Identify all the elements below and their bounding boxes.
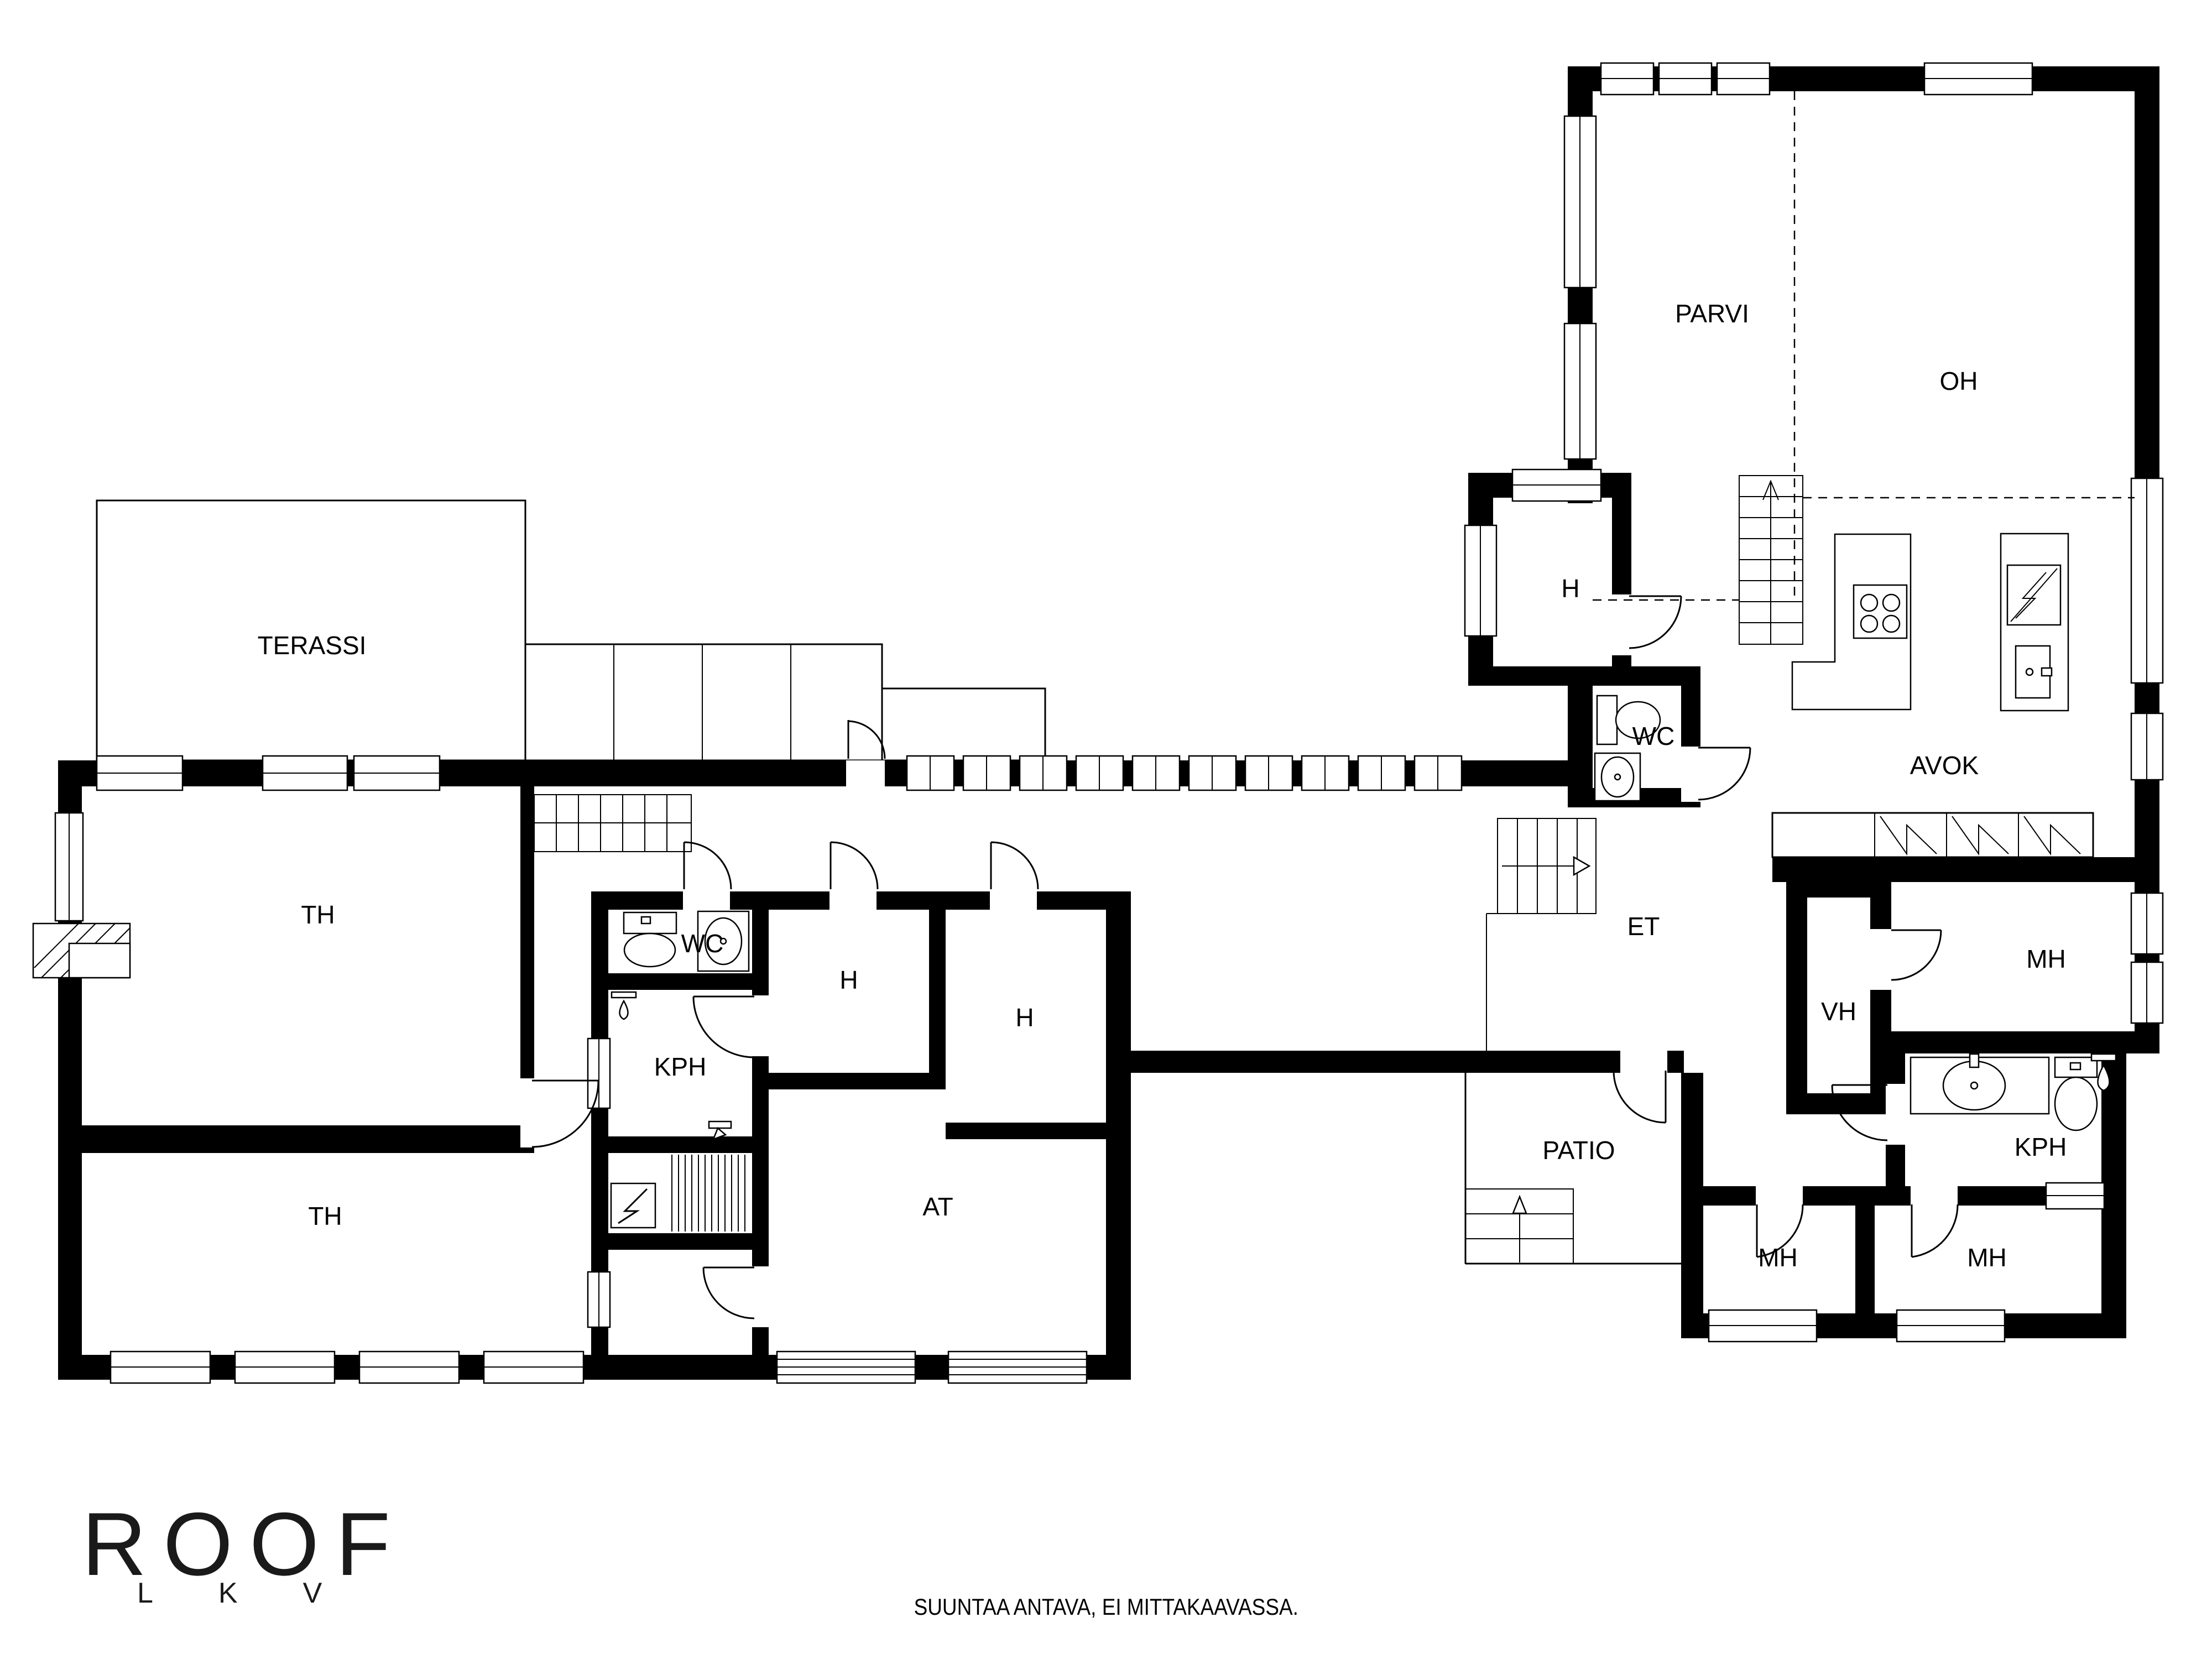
window-icon	[263, 756, 347, 790]
window-icon	[359, 1352, 459, 1383]
brand-logo-subtext: LKV	[137, 1577, 387, 1609]
sauna-benches-icon	[672, 1155, 745, 1232]
window-icon	[1717, 63, 1770, 95]
room-label-th-lower: TH	[308, 1202, 342, 1230]
sink-icon	[1595, 753, 1640, 801]
window-icon	[2131, 893, 2163, 954]
window-icon	[963, 756, 1010, 790]
door	[1612, 594, 1681, 655]
room-label-h-center-2: H	[1015, 1003, 1034, 1032]
window-icon	[235, 1352, 335, 1383]
window-icon	[97, 756, 182, 790]
window-icon	[484, 1352, 583, 1383]
link-steps	[534, 795, 691, 852]
wardrobe-icon	[1772, 813, 2093, 857]
door	[703, 1266, 769, 1327]
brand-logo: ROOF LKV	[82, 1494, 407, 1609]
window-icon	[1897, 1310, 2005, 1342]
fireplace-icon	[2007, 565, 2060, 625]
room-label-th-upper: TH	[301, 900, 335, 929]
door	[693, 995, 769, 1057]
entry-door	[846, 720, 885, 786]
door	[1870, 929, 1941, 990]
room-label-mh-bottom-1: MH	[1758, 1243, 1798, 1272]
window-icon	[1076, 756, 1123, 790]
window-icon	[1465, 525, 1496, 636]
window-icon	[1564, 324, 1596, 459]
room-label-vh: VH	[1821, 997, 1856, 1026]
shower-icon	[612, 992, 636, 1019]
room-label-kph-center: KPH	[654, 1052, 707, 1081]
room-label-at: AT	[922, 1192, 953, 1221]
window-icon	[1415, 756, 1462, 790]
door	[1614, 1051, 1667, 1123]
door	[990, 842, 1038, 910]
room-label-mh-right: MH	[2026, 945, 2066, 973]
window-icon	[1302, 756, 1349, 790]
patio-steps	[1465, 1189, 1573, 1264]
window-icon	[1709, 1310, 1817, 1342]
toilet-icon	[624, 912, 676, 967]
walls	[58, 66, 2159, 1380]
window-icon	[2046, 1183, 2104, 1209]
room-label-kph-right: KPH	[2015, 1133, 2067, 1161]
window-icon	[1659, 63, 1712, 95]
door	[1911, 1186, 1958, 1257]
appliance-icon	[2016, 646, 2052, 698]
garage-door-icon	[777, 1352, 915, 1383]
window-icon	[2131, 962, 2163, 1023]
room-label-oh: OH	[1940, 367, 1978, 395]
garage-door-icon	[948, 1352, 1087, 1383]
sauna-stove-icon	[611, 1183, 655, 1228]
room-label-et: ET	[1627, 912, 1660, 941]
level-lines	[1486, 914, 1498, 1051]
vanity-sink-icon	[1911, 1054, 2049, 1114]
door	[1681, 747, 1750, 802]
room-label-wc-right: WC	[1632, 722, 1675, 750]
window-icon	[2131, 713, 2163, 780]
room-label-patio: PATIO	[1542, 1136, 1615, 1165]
chimney-icon	[33, 924, 130, 978]
cooktop-icon	[1854, 585, 1907, 638]
room-label-avok: AVOK	[1910, 751, 1979, 780]
et-steps	[1498, 818, 1596, 914]
window-icon	[588, 1272, 610, 1327]
window-icon	[111, 1352, 210, 1383]
floor-plan: TERASSI TH TH WC KPH H H AT PARVI OH H W…	[0, 0, 2212, 1659]
window-icon	[1564, 116, 1596, 288]
window-icon	[354, 756, 440, 790]
window-icon	[1924, 63, 2032, 95]
window-icon	[55, 813, 83, 921]
toilet-icon	[2055, 1057, 2097, 1130]
window-icon	[1020, 756, 1067, 790]
room-label-h-center-1: H	[839, 966, 858, 994]
window-icon	[1245, 756, 1292, 790]
loft-edge-dashed	[1593, 91, 2135, 600]
window-icon	[2131, 478, 2163, 683]
door	[520, 1078, 598, 1147]
door	[830, 842, 878, 910]
room-label-terassi: TERASSI	[258, 631, 367, 660]
window-icon	[588, 1039, 610, 1108]
window-icon	[1189, 756, 1236, 790]
window-icon	[1601, 63, 1653, 95]
room-label-parvi: PARVI	[1675, 299, 1749, 328]
terrace-outline	[97, 500, 1045, 760]
window-icon	[1133, 756, 1180, 790]
window-icon	[1512, 469, 1601, 501]
window-icon	[907, 756, 954, 790]
room-label-wc-center: WC	[681, 929, 724, 958]
disclaimer-text: SUUNTAA ANTAVA, EI MITTAKAAVASSA.	[914, 1594, 1298, 1620]
room-label-h-right: H	[1561, 574, 1579, 603]
loft-stairs	[1739, 476, 1803, 644]
window-icon	[1358, 756, 1405, 790]
room-label-mh-bottom-2: MH	[1967, 1243, 2007, 1272]
door	[683, 842, 731, 910]
